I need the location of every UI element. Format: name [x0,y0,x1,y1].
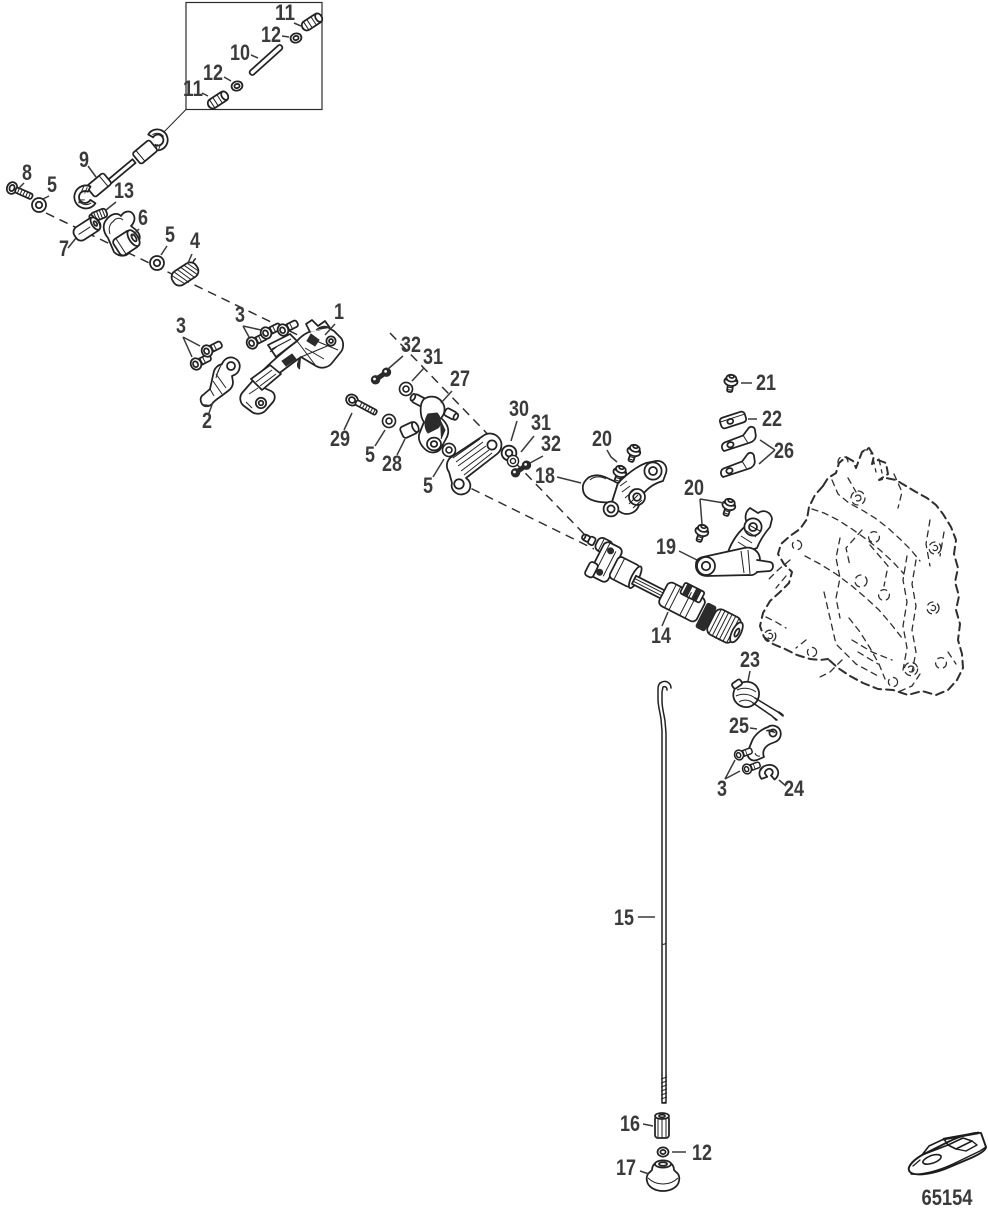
svg-text:2: 2 [202,408,212,433]
svg-text:3: 3 [717,776,727,801]
svg-text:9: 9 [79,147,89,172]
svg-text:5: 5 [423,473,433,498]
svg-text:32: 32 [541,431,561,456]
svg-text:32: 32 [401,332,421,357]
svg-text:19: 19 [656,534,676,559]
svg-text:21: 21 [756,370,776,395]
svg-text:26: 26 [774,438,794,463]
svg-text:31: 31 [423,344,443,369]
svg-text:22: 22 [762,406,782,431]
svg-text:5: 5 [47,172,57,197]
svg-text:17: 17 [616,1155,636,1180]
svg-text:29: 29 [330,426,350,451]
svg-text:18: 18 [535,463,555,488]
svg-text:8: 8 [22,160,32,185]
svg-text:3: 3 [235,302,245,327]
svg-text:23: 23 [740,647,760,672]
svg-text:13: 13 [114,178,134,203]
svg-text:4: 4 [190,228,201,253]
svg-text:30: 30 [509,396,529,421]
svg-text:11: 11 [183,76,203,101]
svg-text:24: 24 [784,776,805,801]
svg-text:3: 3 [176,313,186,338]
svg-text:12: 12 [692,1140,712,1165]
svg-text:15: 15 [614,905,634,930]
svg-text:20: 20 [592,426,612,451]
svg-text:5: 5 [365,442,375,467]
svg-text:10: 10 [230,40,250,65]
svg-text:14: 14 [651,623,672,648]
svg-text:65154: 65154 [922,1185,974,1209]
svg-text:28: 28 [382,451,402,476]
svg-text:5: 5 [165,222,175,247]
svg-text:25: 25 [729,713,749,738]
svg-text:12: 12 [203,60,223,85]
svg-text:1: 1 [334,299,344,324]
svg-text:20: 20 [684,475,704,500]
svg-text:7: 7 [59,236,69,261]
svg-text:16: 16 [620,1111,640,1136]
svg-text:27: 27 [450,366,470,391]
svg-text:6: 6 [138,205,148,230]
svg-text:12: 12 [261,22,281,47]
